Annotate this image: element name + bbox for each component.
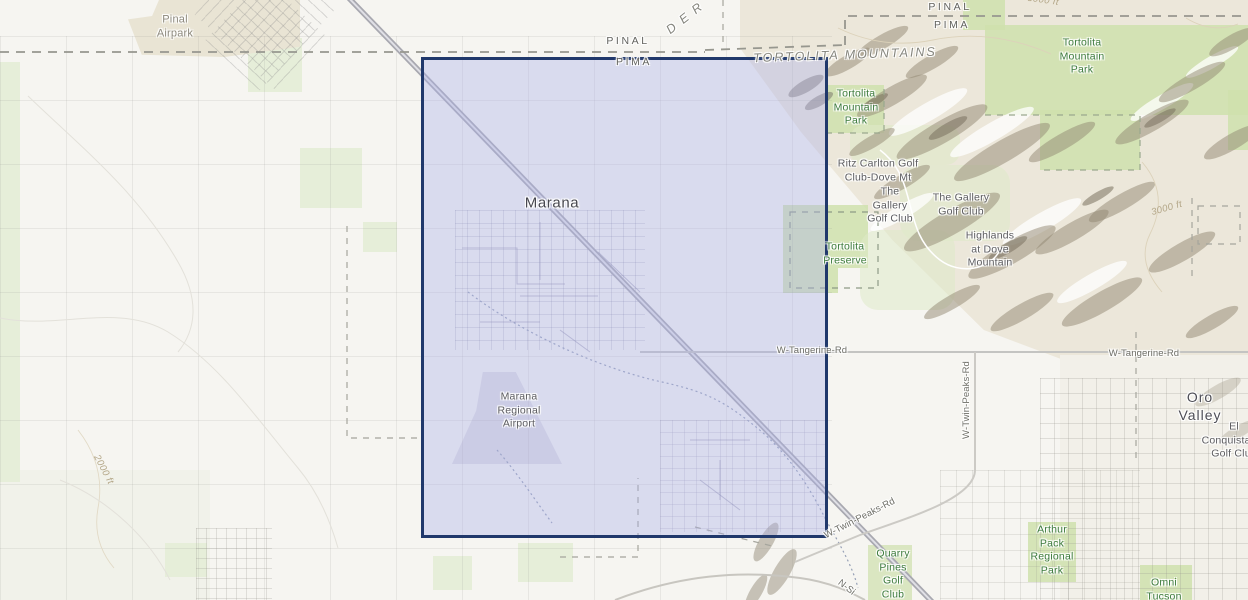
label-oro-valley: Oro Valley bbox=[1176, 388, 1224, 424]
label-tortolita-preserve: Tortolita Preserve bbox=[823, 240, 867, 267]
label-county-pima-left: PIMA bbox=[616, 56, 652, 70]
label-ritz-carlton: Ritz Carlton Golf Club-Dove Mt bbox=[838, 157, 918, 184]
label-tortolita-mtn-park-left: Tortolita Mountain Park bbox=[834, 88, 879, 129]
label-quarry-pines: Quarry Pines Golf Club bbox=[876, 548, 909, 600]
label-tangerine-rd-right: W-Tangerine-Rd bbox=[1109, 348, 1179, 360]
label-gallery-golf-right: The Gallery Golf Club bbox=[933, 191, 989, 218]
label-twin-peaks-vertical: W-Twin-Peaks-Rd bbox=[961, 361, 973, 439]
label-highlands-dove: Highlands at Dove Mountain bbox=[966, 230, 1015, 271]
selection-rectangle-overlay[interactable] bbox=[421, 57, 828, 538]
label-marana: Marana bbox=[525, 193, 579, 213]
map-canvas[interactable]: Pinal Airpark PINAL PIMA PINAL PIMA D E … bbox=[0, 0, 1248, 600]
label-marana-airport: Marana Regional Airport bbox=[497, 391, 540, 432]
label-county-pinal-right: PINAL bbox=[928, 1, 971, 15]
label-tortolita-mtn-park-right: Tortolita Mountain Park bbox=[1060, 37, 1105, 78]
label-pinal-airpark: Pinal Airpark bbox=[157, 13, 193, 42]
label-el-conquistador: El Conquistador Golf Club bbox=[1202, 421, 1248, 462]
label-omni-tucson: Omni Tucson bbox=[1146, 576, 1181, 600]
label-gallery-golf-left: The Gallery Golf Club bbox=[867, 186, 913, 227]
label-tangerine-rd-left: W-Tangerine-Rd bbox=[777, 345, 847, 357]
stream-lines bbox=[0, 96, 338, 580]
label-county-pima-right: PIMA bbox=[934, 19, 970, 33]
silverbell-rd-line bbox=[615, 574, 865, 600]
label-arthur-pack: Arthur Pack Regional Park bbox=[1030, 524, 1073, 579]
label-county-pinal-left: PINAL bbox=[606, 35, 649, 49]
